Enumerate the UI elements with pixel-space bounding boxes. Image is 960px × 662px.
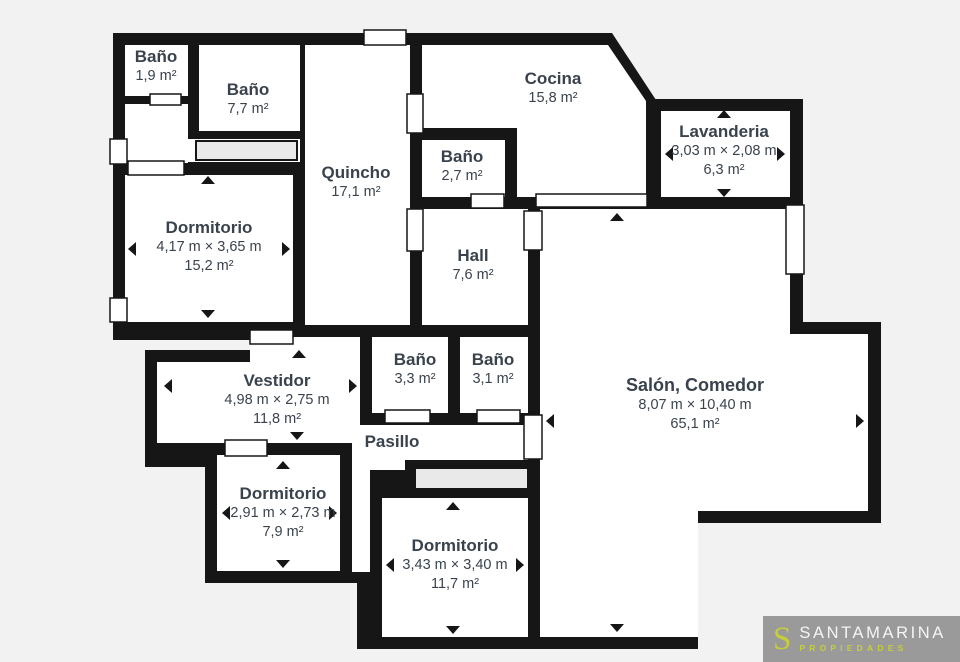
- window: [364, 30, 406, 45]
- floorplan-canvas: Baño 1,9 m² Baño 7,7 m² Quincho 17,1 m² …: [0, 0, 960, 662]
- door-opening: [407, 94, 423, 133]
- logo-name: SANTAMARINA: [799, 625, 946, 642]
- room-quincho: [305, 45, 410, 325]
- floorplan-drawing: [0, 0, 960, 662]
- room-hall: [422, 209, 528, 325]
- room-dormitorio-152: [125, 175, 293, 322]
- window: [110, 139, 127, 164]
- room-dormitorio-117: [382, 498, 528, 637]
- room-lavanderia: [661, 111, 790, 197]
- door-opening: [524, 211, 542, 250]
- window: [786, 205, 804, 274]
- room-bano-33: [372, 337, 448, 413]
- door-opening: [471, 194, 504, 208]
- door-opening: [250, 330, 293, 344]
- logo-tagline: PROPIEDADES: [799, 643, 946, 653]
- door-opening: [477, 410, 520, 423]
- room-dormitorio-79: [217, 455, 340, 571]
- door-opening: [128, 161, 184, 175]
- logo-monogram-icon: S: [773, 623, 791, 656]
- room-bano-77: [199, 45, 300, 131]
- closet: [415, 468, 528, 489]
- window: [110, 298, 127, 322]
- agency-logo: S SANTAMARINA PROPIEDADES: [763, 616, 960, 662]
- door-opening: [536, 194, 647, 207]
- door-opening: [407, 209, 423, 251]
- hallway-area: [125, 104, 188, 163]
- room-bano-19: [125, 45, 188, 96]
- room-bano-27: [422, 140, 505, 197]
- room-salon-comedor: [540, 209, 868, 637]
- door-opening: [225, 440, 267, 456]
- door-opening: [524, 415, 542, 459]
- logo-text-block: SANTAMARINA PROPIEDADES: [799, 625, 946, 653]
- closet: [196, 141, 297, 160]
- corridor-strip: [352, 460, 370, 572]
- door-opening: [385, 410, 430, 423]
- door-opening: [150, 94, 181, 105]
- room-bano-31: [460, 337, 528, 413]
- alcove: [517, 171, 534, 197]
